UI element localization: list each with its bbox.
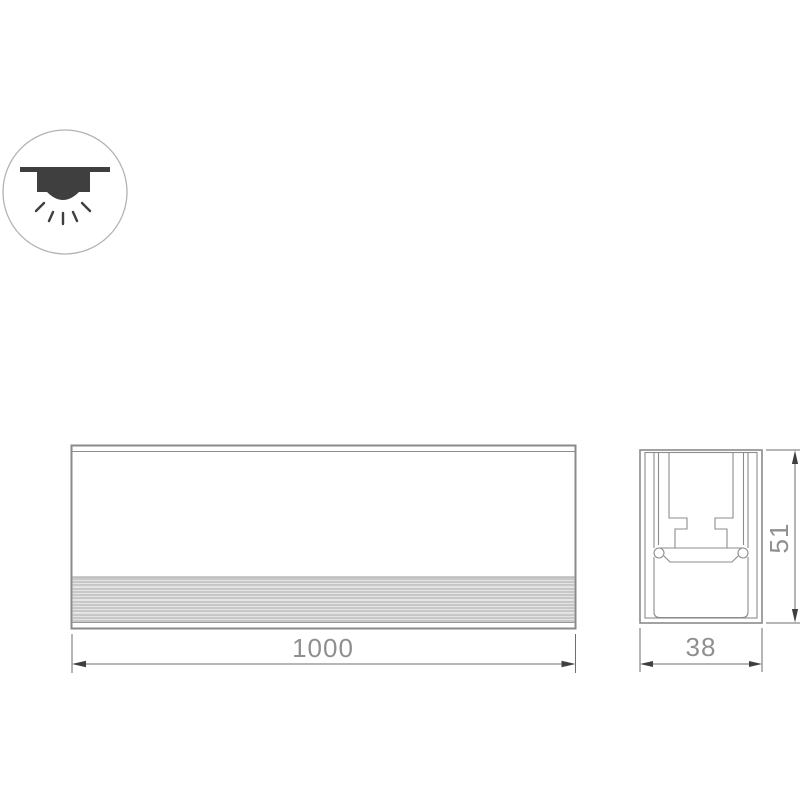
width-dimension-value: 38 <box>686 632 717 662</box>
width-arrow-left <box>640 661 653 667</box>
recessed-downlight-icon <box>3 130 127 254</box>
technical-drawing-canvas: 1000 38 <box>0 0 800 800</box>
length-dimension-value: 1000 <box>292 633 354 663</box>
diffuser-band <box>73 577 575 623</box>
front-view <box>72 446 576 629</box>
icon-ceiling-line <box>20 167 110 172</box>
length-arrow-left <box>72 661 86 667</box>
dimension-length: 1000 <box>72 633 576 673</box>
height-dimension-value: 51 <box>764 523 794 554</box>
width-arrow-right <box>749 661 762 667</box>
length-arrow-right <box>562 661 576 667</box>
dimension-width: 38 <box>640 628 762 672</box>
technical-drawing-page: 1000 38 <box>0 0 800 800</box>
icon-fixture-body <box>37 172 90 192</box>
height-arrow-bottom <box>792 609 798 623</box>
dimension-height: 51 <box>764 450 800 623</box>
section-view <box>640 450 762 623</box>
height-arrow-top <box>792 451 798 465</box>
